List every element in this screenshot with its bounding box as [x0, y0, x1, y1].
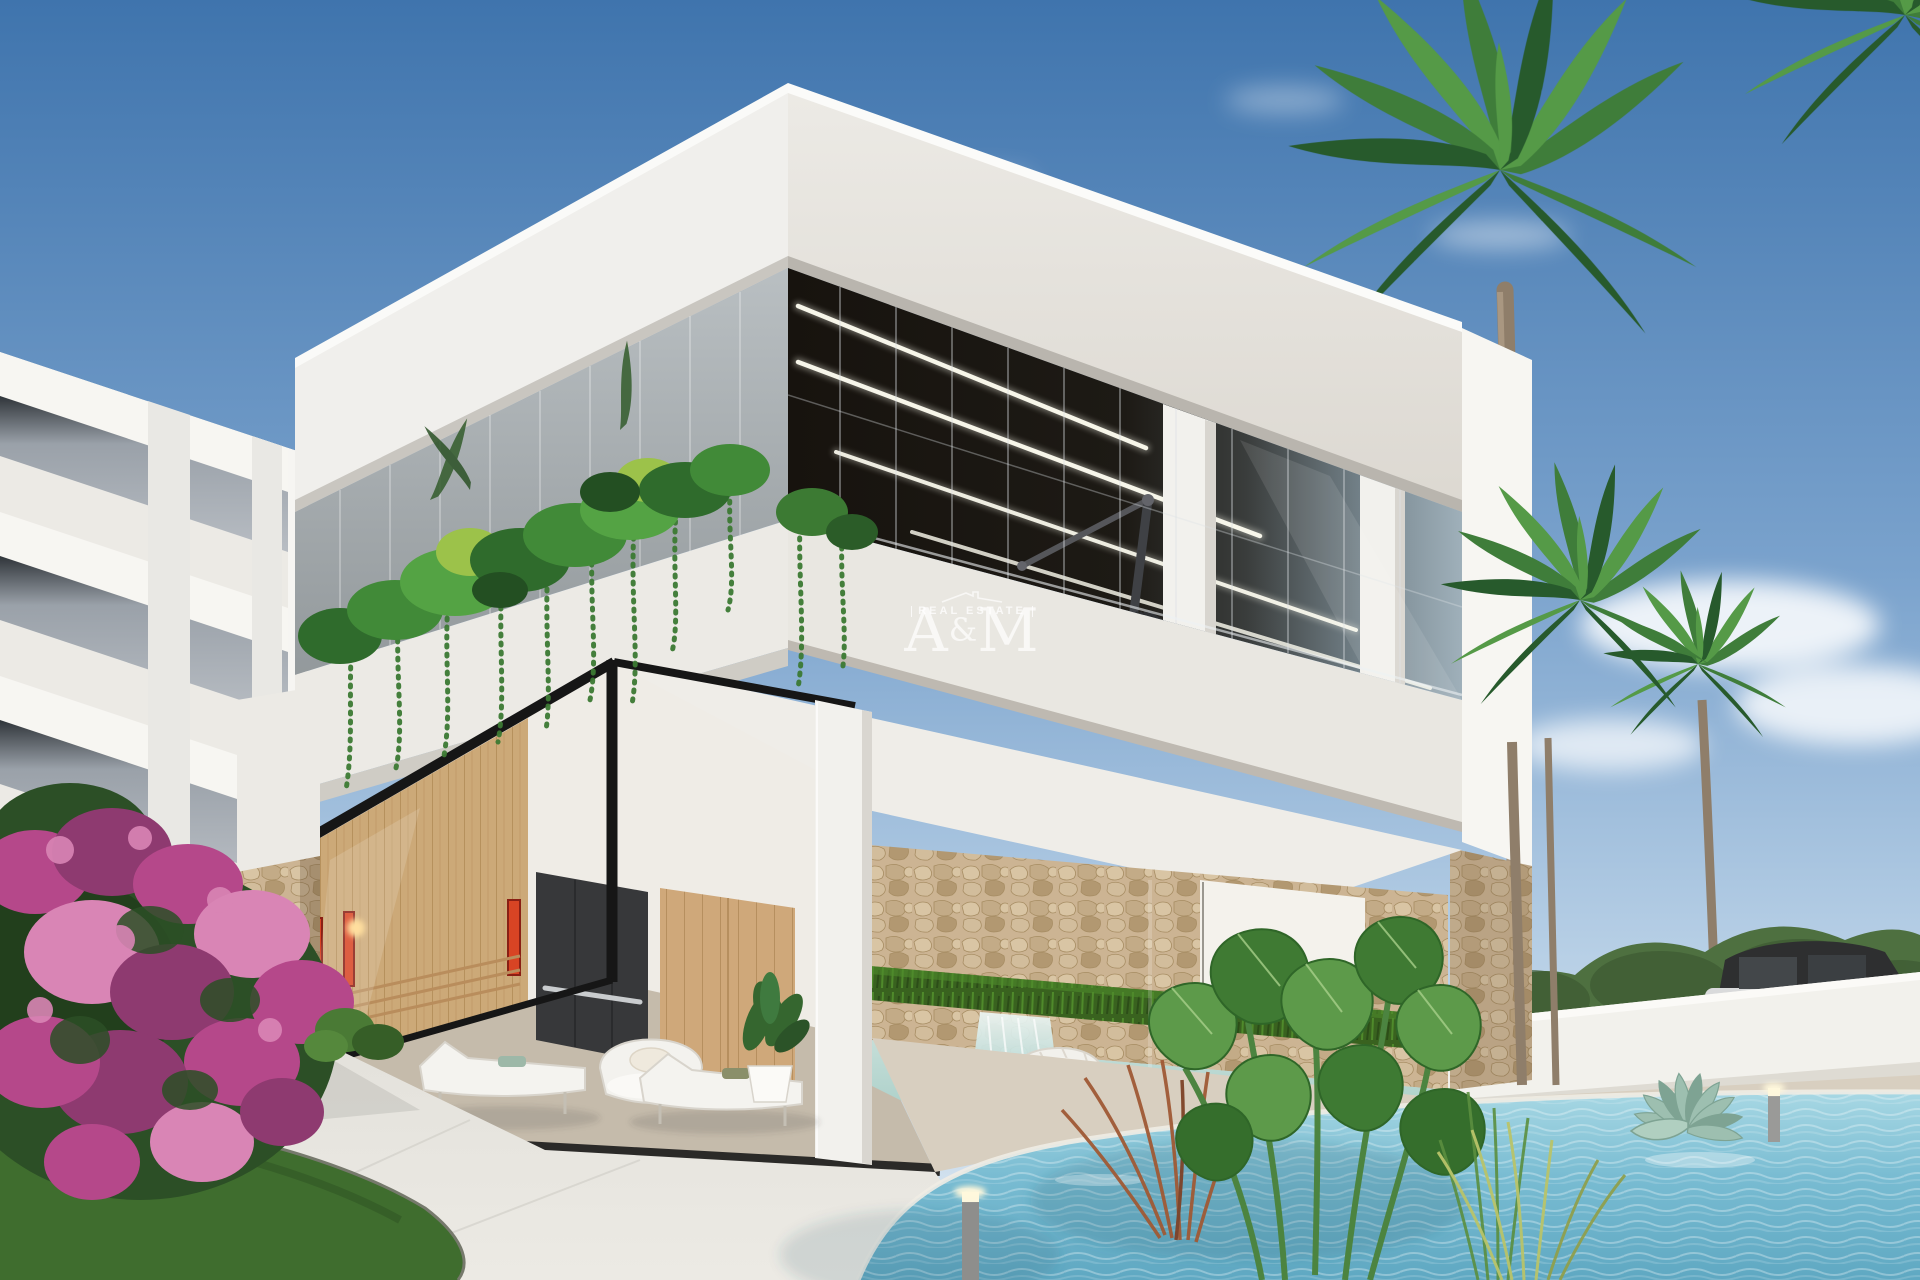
render-canvas: REAL ESTATE A&M [0, 0, 1920, 1280]
corner-column [815, 700, 872, 1165]
dark-cabinet [536, 872, 648, 1062]
villa-end-cap [1462, 328, 1532, 868]
villa-render-scene [0, 0, 1920, 1280]
